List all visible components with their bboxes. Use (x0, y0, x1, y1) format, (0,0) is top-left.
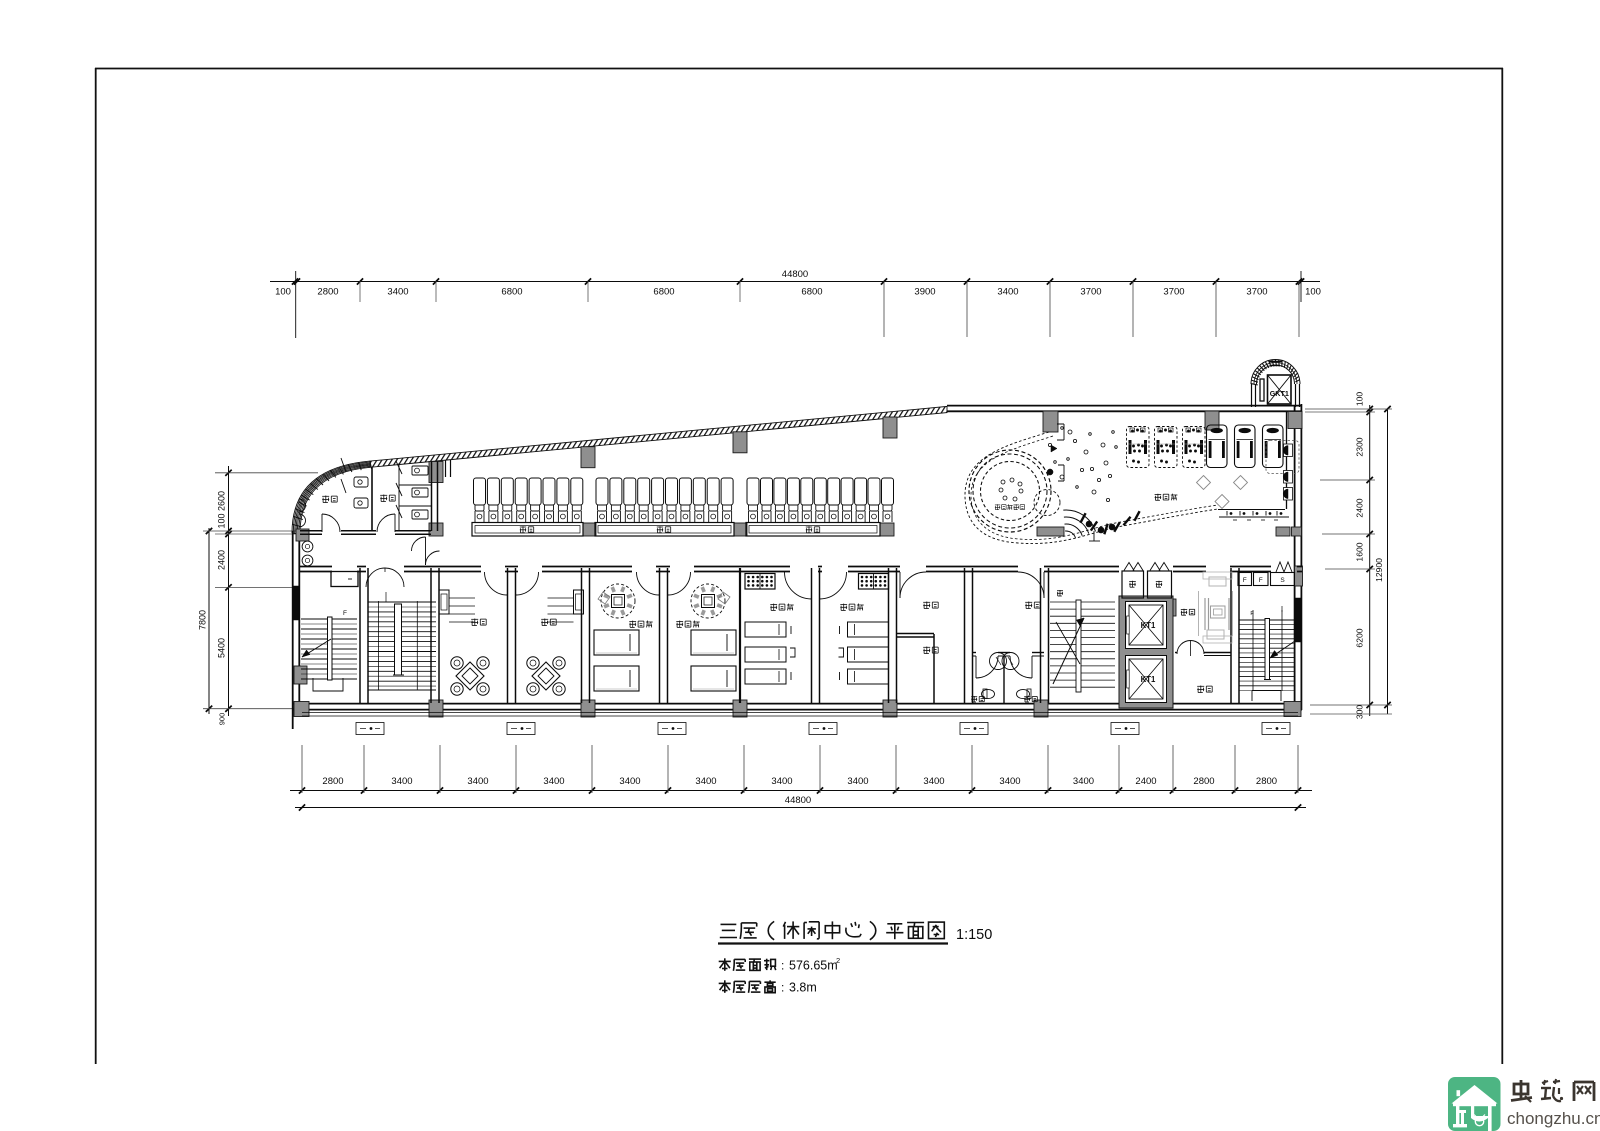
svg-text:100: 100 (275, 287, 291, 298)
svg-text:6800: 6800 (801, 287, 822, 298)
svg-text:7800: 7800 (198, 610, 208, 630)
svg-text:3700: 3700 (1163, 287, 1184, 298)
svg-text:300: 300 (1355, 705, 1365, 720)
svg-text:2600: 2600 (217, 491, 227, 511)
svg-text:F: F (1243, 577, 1247, 584)
svg-text:3400: 3400 (387, 287, 408, 298)
svg-text:2800: 2800 (322, 776, 343, 787)
svg-text:F: F (1259, 577, 1263, 584)
svg-text:2400: 2400 (1135, 776, 1156, 787)
svg-text::: : (781, 959, 784, 973)
svg-text:chongzhu.cn: chongzhu.cn (1507, 1109, 1600, 1128)
svg-text:3400: 3400 (391, 776, 412, 787)
svg-text:3900: 3900 (914, 287, 935, 298)
svg-text:3.8m: 3.8m (789, 981, 817, 995)
svg-text:5400: 5400 (217, 638, 227, 658)
svg-text:100: 100 (1305, 287, 1321, 298)
svg-text:1600: 1600 (1355, 542, 1365, 561)
svg-text:2400: 2400 (217, 550, 227, 570)
svg-text:900: 900 (218, 713, 227, 726)
svg-text:1:150: 1:150 (956, 927, 992, 943)
svg-text::: : (781, 981, 784, 995)
svg-text:6800: 6800 (501, 287, 522, 298)
svg-text:12900: 12900 (1374, 558, 1384, 582)
svg-text:3400: 3400 (1073, 776, 1094, 787)
svg-text:KT1: KT1 (1141, 621, 1156, 630)
svg-text:100: 100 (1355, 392, 1365, 407)
svg-text:576.65m: 576.65m (789, 959, 838, 973)
svg-text:S: S (1280, 577, 1285, 584)
svg-text:3400: 3400 (543, 776, 564, 787)
svg-text:GKT1: GKT1 (1270, 389, 1289, 398)
svg-text:2400: 2400 (1355, 498, 1365, 517)
svg-text:F: F (343, 610, 347, 617)
svg-text:KT1: KT1 (1141, 675, 1156, 684)
svg-text:3400: 3400 (999, 776, 1020, 787)
svg-text:3400: 3400 (771, 776, 792, 787)
svg-text:44800: 44800 (785, 795, 811, 806)
svg-text:2: 2 (836, 956, 840, 965)
svg-text:3400: 3400 (847, 776, 868, 787)
svg-text:100: 100 (217, 513, 227, 528)
svg-text:3400: 3400 (467, 776, 488, 787)
svg-text:6200: 6200 (1355, 628, 1365, 647)
svg-text:3700: 3700 (1246, 287, 1267, 298)
svg-text:3400: 3400 (923, 776, 944, 787)
svg-text:2800: 2800 (1193, 776, 1214, 787)
svg-text:44800: 44800 (782, 269, 808, 280)
svg-text:6800: 6800 (653, 287, 674, 298)
svg-text:3700: 3700 (1080, 287, 1101, 298)
svg-text:2800: 2800 (1256, 776, 1277, 787)
svg-text:2800: 2800 (317, 287, 338, 298)
svg-text:3400: 3400 (619, 776, 640, 787)
svg-text:3400: 3400 (997, 287, 1018, 298)
svg-text:2300: 2300 (1355, 437, 1365, 456)
svg-text:3400: 3400 (695, 776, 716, 787)
